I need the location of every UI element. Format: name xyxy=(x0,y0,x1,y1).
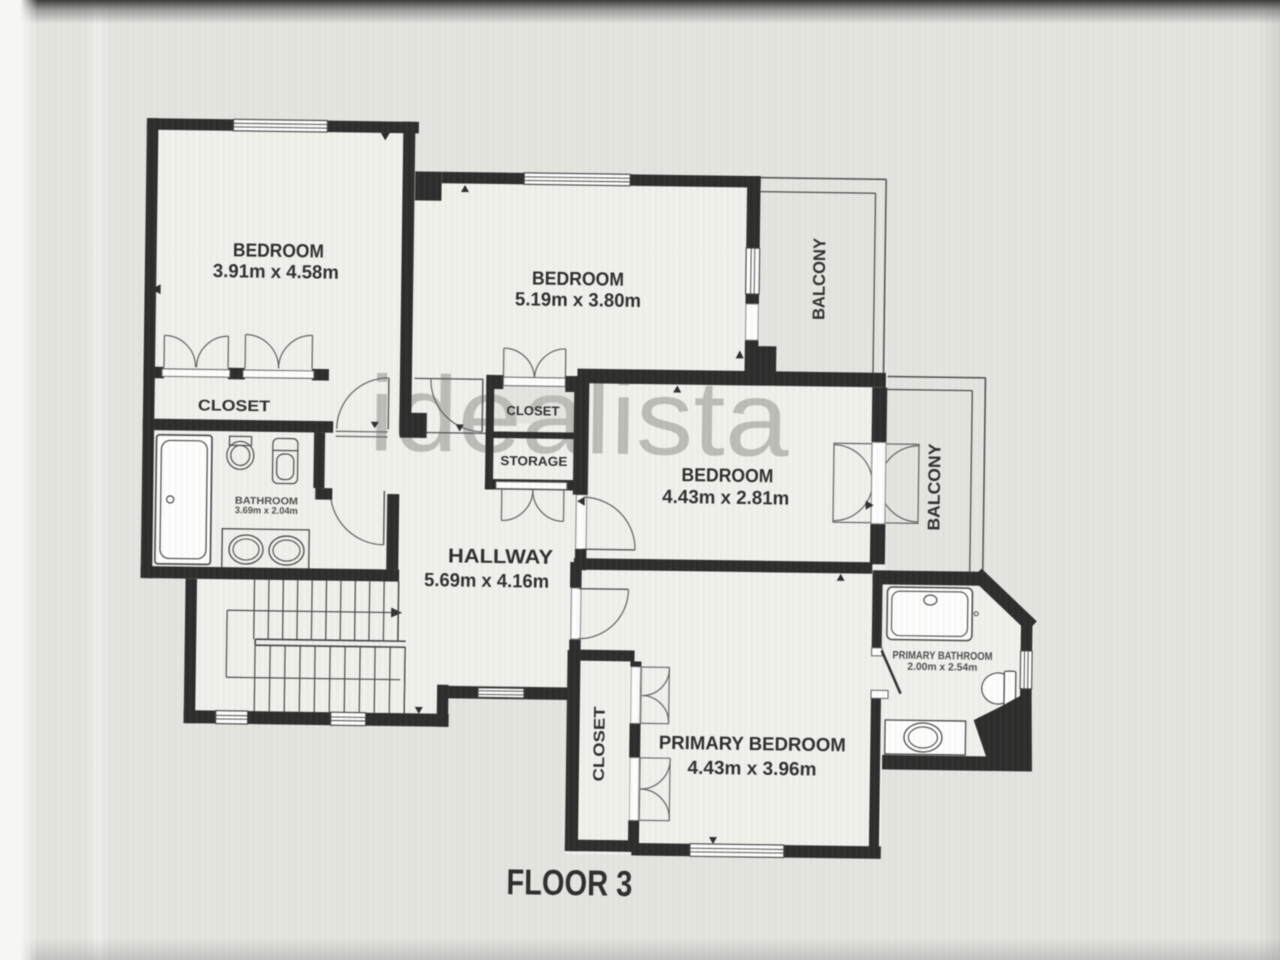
svg-text:BEDROOM: BEDROOM xyxy=(532,268,624,290)
svg-text:3.91m x 4.58m: 3.91m x 4.58m xyxy=(213,261,339,284)
svg-text:4.43m x 2.81m: 4.43m x 2.81m xyxy=(662,487,789,510)
svg-text:CLOSET: CLOSET xyxy=(198,397,271,415)
svg-text:CLOSET: CLOSET xyxy=(591,706,609,782)
svg-text:2.00m x 2.54m: 2.00m x 2.54m xyxy=(907,661,977,674)
svg-text:BEDROOM: BEDROOM xyxy=(233,240,324,262)
svg-text:BALCONY: BALCONY xyxy=(924,443,944,531)
svg-text:PRIMARY BEDROOM: PRIMARY BEDROOM xyxy=(659,733,846,757)
svg-text:BALCONY: BALCONY xyxy=(809,237,829,320)
svg-text:3.69m x 2.04m: 3.69m x 2.04m xyxy=(235,505,298,517)
svg-text:HALLWAY: HALLWAY xyxy=(448,545,554,568)
svg-text:FLOOR 3: FLOOR 3 xyxy=(506,861,633,904)
svg-text:5.19m x 3.80m: 5.19m x 3.80m xyxy=(515,289,641,312)
svg-text:BEDROOM: BEDROOM xyxy=(681,465,773,487)
svg-text:5.69m x 4.16m: 5.69m x 4.16m xyxy=(424,570,549,593)
svg-text:4.43m x 3.96m: 4.43m x 3.96m xyxy=(687,758,816,781)
svg-text:CLOSET: CLOSET xyxy=(506,403,559,419)
svg-text:STORAGE: STORAGE xyxy=(500,453,568,469)
